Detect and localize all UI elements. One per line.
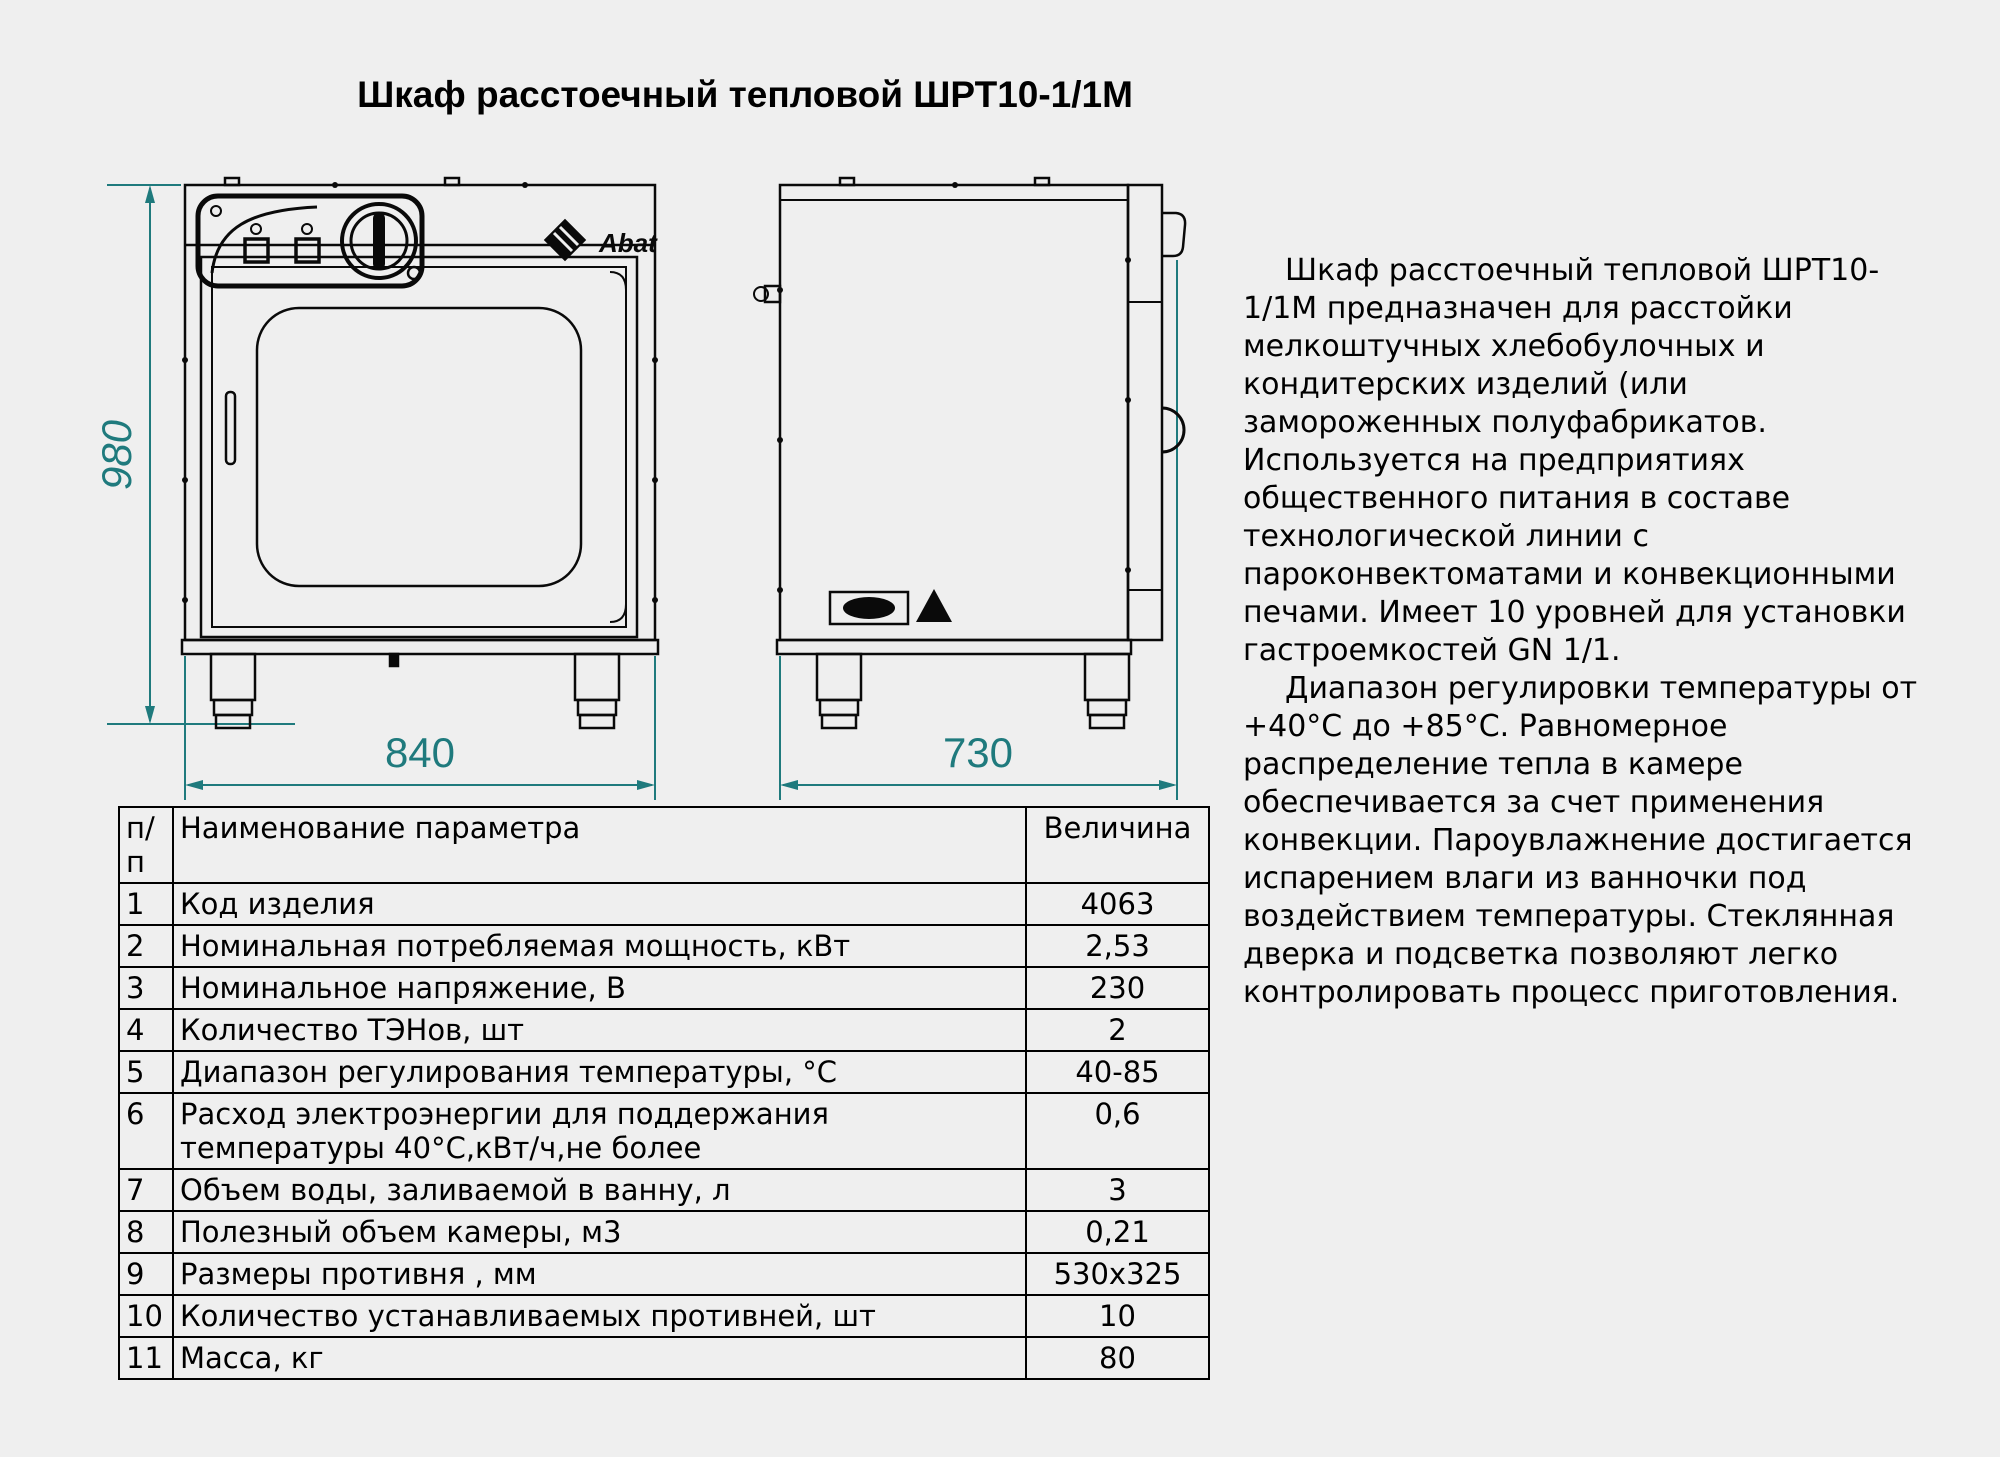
table-row: 3 Номинальное напряжение, В 230 xyxy=(119,967,1209,1009)
param-value-cell: 0,6 xyxy=(1026,1093,1209,1169)
param-value-cell: 2,53 xyxy=(1026,925,1209,967)
param-name-cell: Масса, кг xyxy=(173,1337,1026,1379)
row-num-cell: 7 xyxy=(119,1169,173,1211)
param-value-cell: 40-85 xyxy=(1026,1051,1209,1093)
table-header-row: п/п Наименование параметра Величина xyxy=(119,807,1209,883)
table-row: 2 Номинальная потребляемая мощность, кВт… xyxy=(119,925,1209,967)
height-dimension-label: 980 xyxy=(95,419,140,490)
abat-logo-icon: Abat xyxy=(544,219,658,261)
table-row: 11 Масса, кг 80 xyxy=(119,1337,1209,1379)
param-name-cell: Полезный объем камеры, м3 xyxy=(173,1211,1026,1253)
side-view-drawing: 730 xyxy=(745,140,1215,805)
table-row: 7 Объем воды, заливаемой в ванну, л 3 xyxy=(119,1169,1209,1211)
spec-table: п/п Наименование параметра Величина 1 Ко… xyxy=(118,806,1210,1380)
table-row: 9 Размеры противня , мм 530x325 xyxy=(119,1253,1209,1295)
row-num-cell: 4 xyxy=(119,1009,173,1051)
side-view-svg: 730 xyxy=(745,140,1215,805)
param-name-cell: Размеры противня , мм xyxy=(173,1253,1026,1295)
param-name-cell: Объем воды, заливаемой в ванну, л xyxy=(173,1169,1026,1211)
header-num: п/п xyxy=(119,807,173,883)
description-paragraph-1: Шкаф расстоечный тепловой ШРТ10-1/1М пре… xyxy=(1243,252,1923,670)
warning-triangle-icon xyxy=(916,589,952,622)
row-num-cell: 1 xyxy=(119,883,173,925)
control-panel xyxy=(198,196,422,286)
table-row: 6 Расход электроэнергии для поддержания … xyxy=(119,1093,1209,1169)
param-name-cell: Количество ТЭНов, шт xyxy=(173,1009,1026,1051)
header-value: Величина xyxy=(1026,807,1209,883)
param-name-cell: Номинальное напряжение, В xyxy=(173,967,1026,1009)
page-title: Шкаф расстоечный тепловой ШРТ10-1/1М xyxy=(20,74,1470,116)
door-handle-icon xyxy=(226,392,235,464)
param-name-cell: Диапазон регулирования температуры, °С xyxy=(173,1051,1026,1093)
param-value-cell: 80 xyxy=(1026,1337,1209,1379)
param-name-cell: Расход электроэнергии для поддержания те… xyxy=(173,1093,1026,1169)
table-row: 8 Полезный объем камеры, м3 0,21 xyxy=(119,1211,1209,1253)
side-handle-icon xyxy=(1162,213,1185,256)
row-num-cell: 11 xyxy=(119,1337,173,1379)
glass-door xyxy=(201,257,637,637)
table-row: 1 Код изделия 4063 xyxy=(119,883,1209,925)
hinge-bump xyxy=(1162,408,1184,452)
row-num-cell: 5 xyxy=(119,1051,173,1093)
table-row: 5 Диапазон регулирования температуры, °С… xyxy=(119,1051,1209,1093)
row-num-cell: 6 xyxy=(119,1093,173,1169)
row-num-cell: 8 xyxy=(119,1211,173,1253)
param-value-cell: 4063 xyxy=(1026,883,1209,925)
param-value-cell: 0,21 xyxy=(1026,1211,1209,1253)
table-row: 10 Количество устанавливаемых противней,… xyxy=(119,1295,1209,1337)
switch-button-icon xyxy=(245,239,268,262)
table-row: 4 Количество ТЭНов, шт 2 xyxy=(119,1009,1209,1051)
front-view-drawing: 980 840 xyxy=(95,140,675,805)
param-value-cell: 530x325 xyxy=(1026,1253,1209,1295)
param-value-cell: 230 xyxy=(1026,967,1209,1009)
param-name-cell: Номинальная потребляемая мощность, кВт xyxy=(173,925,1026,967)
height-dimension: 980 xyxy=(95,185,295,724)
row-num-cell: 9 xyxy=(119,1253,173,1295)
side-bolt-marks xyxy=(777,182,1131,593)
brand-logo-text: Abat xyxy=(598,228,658,258)
param-value-cell: 2 xyxy=(1026,1009,1209,1051)
description-text: Шкаф расстоечный тепловой ШРТ10-1/1М пре… xyxy=(1243,252,1923,1012)
description-paragraph-2: Диапазон регулировки температуры от +40°… xyxy=(1243,670,1923,1012)
row-num-cell: 10 xyxy=(119,1295,173,1337)
front-view-svg: 980 840 xyxy=(95,140,675,805)
header-name: Наименование параметра xyxy=(173,807,1026,883)
param-name-cell: Код изделия xyxy=(173,883,1026,925)
width-dimension-label: 840 xyxy=(385,729,455,776)
cabinet-side-outline xyxy=(754,178,1185,728)
nameplate xyxy=(830,592,908,624)
depth-dimension-label: 730 xyxy=(943,729,1013,776)
param-value-cell: 3 xyxy=(1026,1169,1209,1211)
param-name-cell: Количество устанавливаемых противней, шт xyxy=(173,1295,1026,1337)
depth-dimension: 730 xyxy=(780,260,1177,800)
lamp-button-icon xyxy=(296,239,319,262)
param-value-cell: 10 xyxy=(1026,1295,1209,1337)
row-num-cell: 2 xyxy=(119,925,173,967)
spec-sheet-page: Шкаф расстоечный тепловой ШРТ10-1/1М 980… xyxy=(0,0,2000,1457)
row-num-cell: 3 xyxy=(119,967,173,1009)
